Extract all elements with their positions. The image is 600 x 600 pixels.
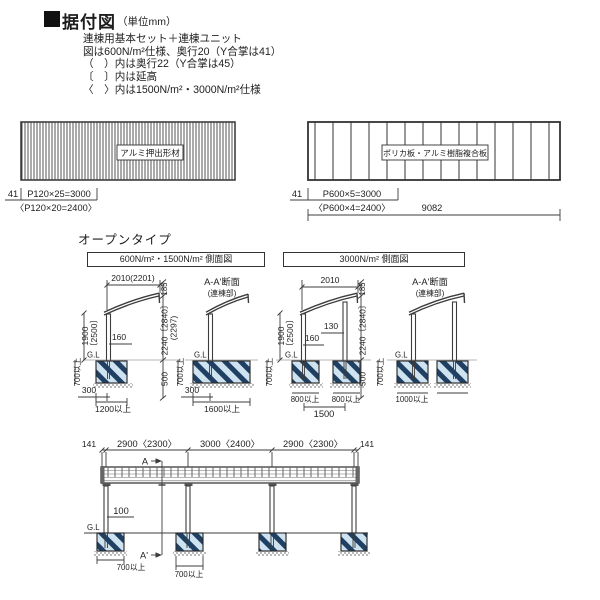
d1-width-dim: 2010(2201): [111, 273, 155, 283]
d2s-footing1-dim: 1000以上: [396, 395, 429, 404]
elev-edge-left-dim: 141: [82, 439, 96, 449]
panel-total-dim: 9082: [422, 203, 443, 213]
aluminum-pitch-alt-dim: 〈P120×20=2400〉: [15, 203, 97, 213]
elev-span1-dim: 2900〈2300〉: [117, 439, 177, 449]
d2-post-height-alt-dim: 〔2500〕: [285, 315, 295, 351]
d1s-gl-label: G.L: [194, 351, 207, 360]
elev-footing1-dim: 700以上: [117, 563, 146, 572]
panel-edge-dim: 41: [292, 189, 302, 199]
d2-offset-front-dim: 130: [324, 321, 338, 331]
drawing-canvas: アルミ押出形材 41 P120×25=3000 〈P120×20=2400〉 ポ…: [0, 0, 600, 600]
d1-offset-dim: 160: [112, 332, 126, 342]
installation-drawing-page: 据付図 （単位mm） 連棟用基本セット＋連棟ユニット 図は600N/m²仕様、奥…: [0, 0, 600, 600]
d2-span-dim: 1500: [314, 409, 335, 419]
d1-total-height-alt-dim: (2297): [169, 316, 179, 341]
d2-offset-dim: 160: [305, 333, 319, 343]
d2-gl-label: G.L: [285, 351, 298, 360]
d1s-embed-dim: 700以上: [176, 357, 185, 386]
aluminum-extrusion-drawing: アルミ押出形材 41 P120×25=3000 〈P120×20=2400〉: [5, 122, 235, 213]
panel-drawing: ポリカ板・アルミ樹脂複合板 41 P600×5=3000 〈P600×4=240…: [290, 122, 560, 221]
d1s-edge-dim: 300: [185, 385, 199, 395]
diagram1-section-view: A-A'断面 (連棟部) G.L 700以上 300 1600以上: [176, 276, 258, 414]
d2-footing2-dim: 800以上: [332, 395, 361, 404]
d1-footing-dim: 1200以上: [95, 404, 131, 414]
d1-front-height-dim: 185: [160, 282, 169, 296]
diagram2-section-view: A-A'断面 (連棟部) G.L 700以上 1000以上: [376, 276, 477, 404]
d2-below-dim: 500: [358, 372, 368, 386]
panel-pitch-alt-dim: 〈P600×4=2400〉: [313, 203, 390, 213]
d2-embed-dim: 700以上: [265, 357, 274, 386]
d1-section-subtitle: (連棟部): [208, 288, 237, 298]
diagram2-side-view: 2010 130 160 1900 〔2500〕 G.L 700以上: [265, 275, 371, 419]
d1-embed-dim: 700以上: [73, 357, 82, 386]
d2-front-height-dim: 185: [358, 282, 367, 296]
d1-below-dim: 500: [160, 372, 170, 386]
d2s-gl-label: G.L: [395, 351, 408, 360]
d1-post-height-alt-dim: 〔2500〕: [89, 315, 99, 351]
diagram1-side-view: 2010(2201) G.L 1900 〔2500〕 700以上 160 300: [73, 273, 181, 414]
panel-label: ポリカ板・アルミ樹脂複合板: [383, 148, 487, 158]
elev-span2-dim: 3000〈2400〉: [200, 439, 260, 449]
d1-section-title: A-A'断面: [204, 276, 240, 287]
d2-section-subtitle: (連棟部): [416, 288, 445, 298]
d2s-embed-dim: 700以上: [376, 357, 385, 386]
elev-gl-label: G.L: [87, 523, 100, 532]
d1-edge-dim: 300: [82, 385, 96, 395]
elev-footing2-dim: 700以上: [175, 570, 204, 579]
d2-footing1-dim: 800以上: [291, 395, 320, 404]
elev-span3-dim: 2900〈2300〉: [283, 439, 343, 449]
d1s-footing-dim: 1600以上: [204, 404, 240, 414]
elev-section-start-label: A: [142, 457, 149, 467]
panel-pitch-dim: P600×5=3000: [323, 189, 381, 199]
front-elevation: 141 2900〈2300〉 3000〈2400〉 2900〈2300〉 141: [82, 439, 374, 579]
d2-section-title: A-A'断面: [412, 276, 448, 287]
d2-width-dim: 2010: [321, 275, 340, 285]
aluminum-edge-dim: 41: [8, 189, 18, 199]
aluminum-pitch-dim: P120×25=3000: [27, 189, 91, 199]
elev-section-end-label: A': [140, 551, 148, 561]
elev-edge-right-dim: 141: [360, 439, 374, 449]
aluminum-label: アルミ押出形材: [120, 148, 180, 158]
elev-post-dim: 100: [113, 506, 129, 516]
d2-total-height-dim: 2240〔2840〕: [358, 301, 368, 356]
